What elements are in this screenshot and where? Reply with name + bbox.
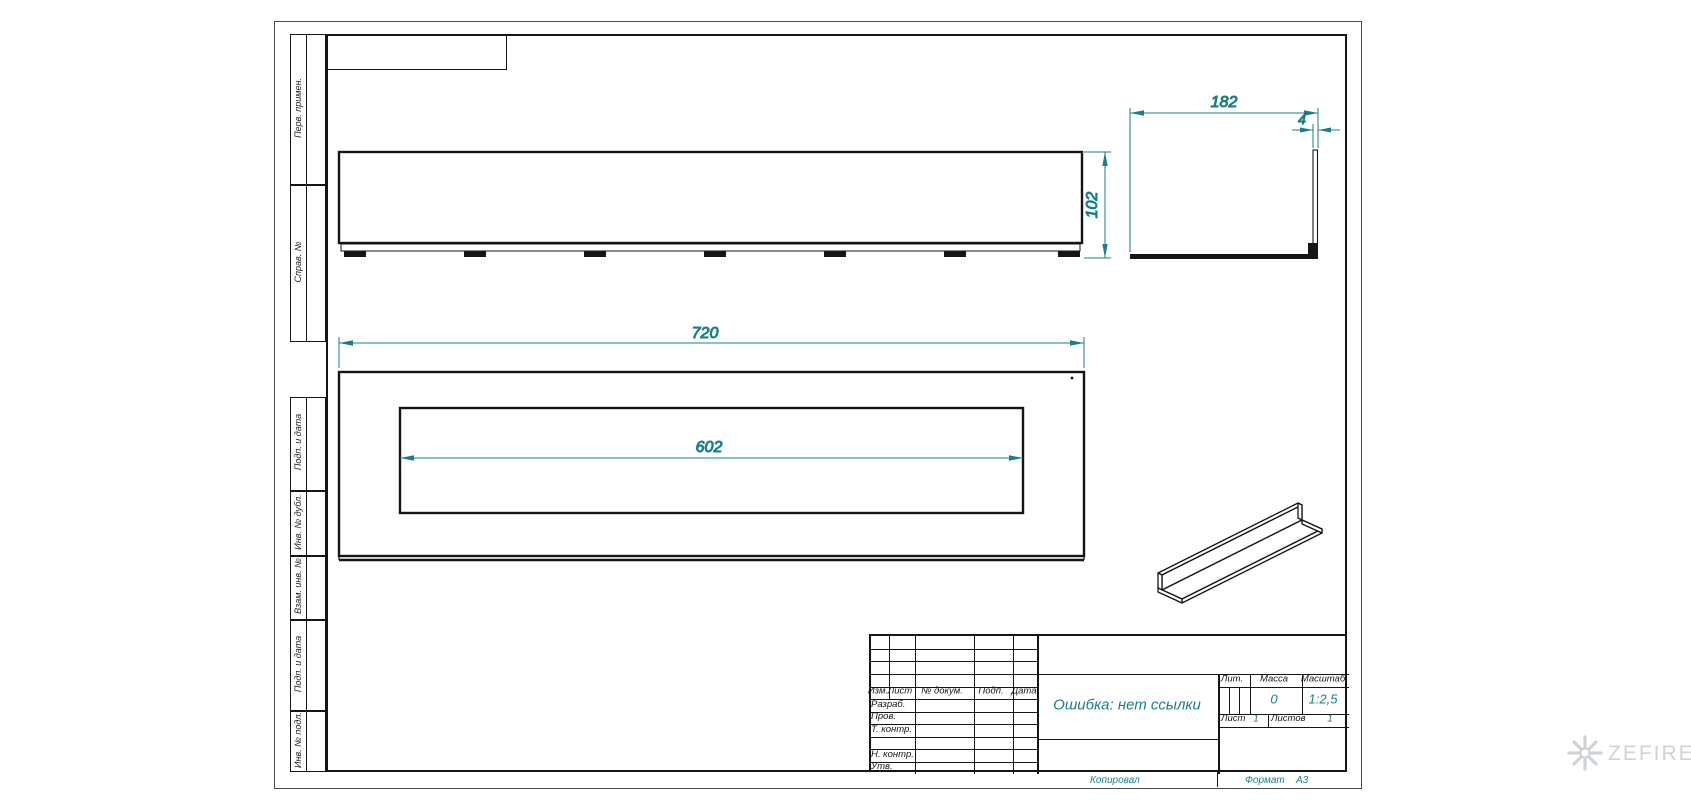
margin-box-divider: [306, 621, 307, 710]
margin-box-divider: [306, 186, 307, 341]
title-block-line: [1218, 687, 1349, 688]
margin-box-label: Инв. № дубл.: [293, 492, 303, 552]
tb-lit-label: Лит.: [1221, 674, 1243, 685]
tb-sheet-value: 1: [1253, 714, 1259, 725]
footer-format-label: Формат: [1245, 775, 1285, 786]
margin-box-podp-data-2: Подп. и дата: [290, 620, 326, 711]
margin-box-divider: [306, 557, 307, 619]
tb-row-tkontr: Т. контр.: [871, 724, 912, 735]
title-block-line: [871, 762, 1037, 763]
tb-row-prov: Пров.: [871, 711, 896, 722]
title-block-line: [1218, 727, 1349, 728]
tb-sheets-value: 1: [1327, 714, 1333, 725]
tb-row-razrab: Разраб.: [871, 699, 905, 710]
title-block-line: [1229, 687, 1230, 714]
margin-box-divider: [306, 35, 307, 184]
title-block-line: [1250, 674, 1251, 714]
tb-sheet-label: Лист: [1221, 713, 1245, 724]
tb-scale-value: 1:2,5: [1309, 692, 1338, 707]
margin-box-label: Подп. и дата: [293, 634, 303, 694]
tb-header-podp: Подп.: [978, 686, 1003, 697]
tb-header-izm: Изм.: [868, 686, 888, 697]
margin-box-vzam-inv: Взам. инв. №: [290, 556, 326, 620]
title-block-line: [871, 737, 1037, 738]
title-block-line: [915, 636, 916, 774]
margin-box-label: Подп. и дата: [293, 412, 303, 472]
title-block-line: [871, 674, 1037, 675]
footer-copied-label: Копировал: [1090, 775, 1140, 786]
margin-box-divider: [306, 398, 307, 490]
title-block-line: [974, 636, 975, 774]
title-block-divider: [1218, 674, 1220, 774]
title-block-line: [1037, 739, 1218, 740]
margin-box-label: Инв. № подл.: [293, 710, 303, 770]
margin-box-perv-primen: Перв. примен.: [290, 34, 326, 185]
tb-header-list: Лист: [888, 686, 912, 697]
margin-box-inv-podl: Инв. № подл.: [290, 711, 326, 772]
title-block-line: [1268, 714, 1269, 727]
margin-box-label: Перв. примен.: [293, 78, 303, 138]
margin-box-divider: [306, 712, 307, 771]
footer-divider: [1217, 772, 1218, 787]
title-block-line: [1013, 636, 1014, 774]
tb-mass-label: Масса: [1260, 674, 1288, 685]
tb-mass-value: 0: [1270, 692, 1277, 707]
margin-box-inv-dubl: Инв. № дубл.: [290, 491, 326, 556]
margin-box-divider: [306, 492, 307, 555]
drawing-canvas: Перв. примен. Справ. № Подп. и дата Инв.…: [0, 0, 1691, 810]
tb-row-utv: Утв.: [871, 761, 893, 772]
title-block-line: [871, 649, 1037, 650]
title-block-divider: [1037, 636, 1039, 774]
title-block-line: [871, 661, 1037, 662]
tb-header-ndokum: № докум.: [921, 686, 963, 697]
zefire-logo-text: ZEFIRE: [1608, 742, 1691, 766]
tb-scale-label: Масштаб: [1301, 674, 1345, 685]
top-left-graph-box: [326, 34, 507, 70]
tb-name-cell-error-text: Ошибка: нет ссылки: [1053, 697, 1201, 714]
tb-header-data: Дата: [1011, 686, 1036, 697]
tb-row-nkontr: Н. контр.: [871, 749, 914, 760]
margin-box-podp-data-1: Подп. и дата: [290, 397, 326, 491]
tb-sheets-label: Листов: [1271, 713, 1306, 724]
zefire-logo-icon: [1569, 737, 1601, 769]
margin-box-label: Взам. инв. №: [293, 556, 303, 616]
footer-format-value: А3: [1296, 775, 1308, 786]
title-block-line: [1239, 687, 1240, 714]
margin-box-sprav-no: Справ. №: [290, 185, 326, 342]
margin-box-label: Справ. №: [293, 232, 303, 292]
